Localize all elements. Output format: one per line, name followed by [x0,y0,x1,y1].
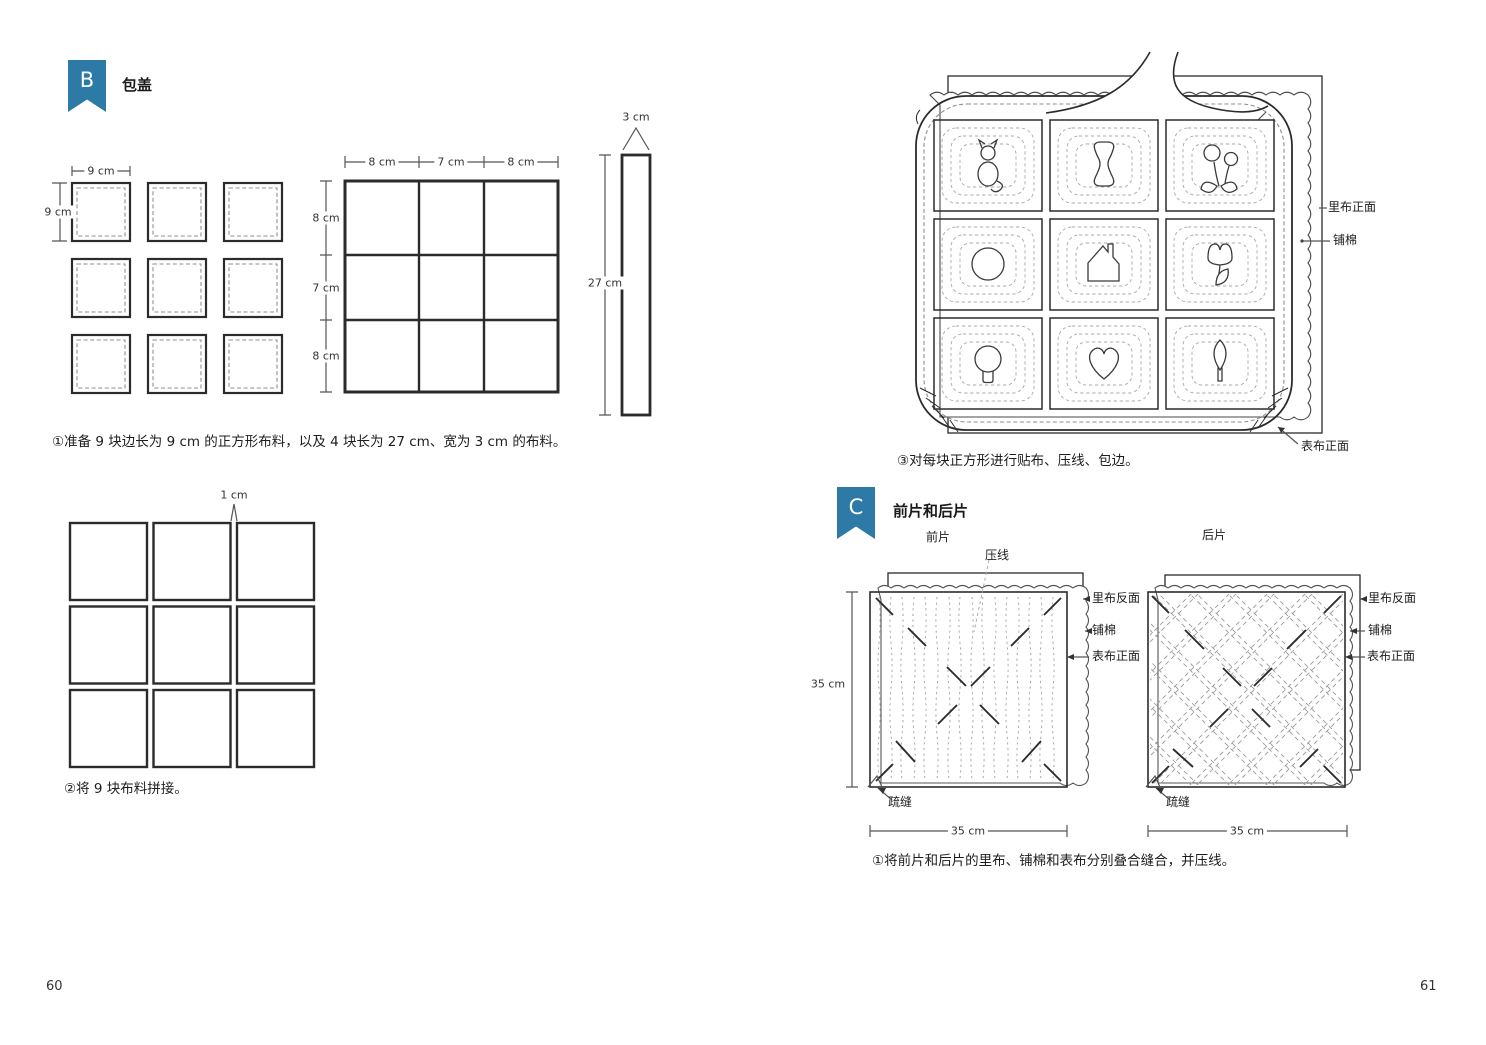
quilting-label: 压线 [985,549,1009,562]
caption-step1-right: ①将前片和后片的里布、铺棉和表布分别叠合缝合，并压线。 [872,849,1235,869]
seam-gap-label: 1 cm [217,489,250,502]
cut-squares-grid [52,166,282,393]
front-batting-label: 铺棉 [1092,624,1116,637]
binding-strip [599,128,650,415]
front-lining-back-label: 里布反面 [1092,592,1140,605]
grid-row-label-1: 8 cm [309,212,342,225]
panel-lining-front-label: 里布正面 [1328,201,1376,214]
strip-length-label: 27 cm [585,277,625,290]
section-c-letter: C [849,495,864,519]
front-piece-title: 前片 [926,531,950,544]
quilt-panel [916,52,1330,444]
diagram-artwork [0,0,1486,1045]
grid-col-label-3: 8 cm [504,156,537,169]
caption-step2-left: ②将 9 块布料拼接。 [64,777,188,797]
front-basting-label: 疏缝 [888,796,912,809]
grid-col-label-2: 7 cm [434,156,467,169]
caption-step1-left: ①准备 9 块边长为 9 cm 的正方形布料，以及 4 块长为 27 cm、宽为… [52,430,566,450]
back-batting-label: 铺棉 [1368,624,1392,637]
front-piece-diagram [846,560,1092,837]
strip-width-label: 3 cm [619,111,652,124]
panel-batting-label: 铺棉 [1333,234,1357,247]
pieced-grid [70,504,314,767]
caption-step3-right: ③对每块正方形进行贴布、压线、包边。 [897,449,1139,469]
page-number-left: 60 [46,979,63,994]
square-height-label: 9 cm [41,206,74,219]
back-width-label: 35 cm [1227,825,1267,838]
page-number-right: 61 [1420,979,1437,994]
back-piece-title: 后片 [1202,529,1226,542]
grid-row-label-2: 7 cm [309,282,342,295]
finished-grid [320,156,558,392]
panel-outer-front-label: 表布正面 [1301,440,1349,453]
square-width-label: 9 cm [84,165,117,178]
book-spread: B 包盖 9 cm 9 cm 8 cm 7 cm 8 cm 8 cm 7 cm … [0,0,1486,1045]
back-outer-front-label: 表布正面 [1367,650,1415,663]
front-height-label: 35 cm [808,678,848,691]
front-outer-front-label: 表布正面 [1092,650,1140,663]
grid-col-label-1: 8 cm [365,156,398,169]
back-lining-back-label: 里布反面 [1368,592,1416,605]
section-b-title: 包盖 [122,74,152,95]
section-b-letter: B [80,68,94,92]
grid-row-label-3: 8 cm [309,350,342,363]
back-basting-label: 疏缝 [1166,796,1190,809]
section-c-title: 前片和后片 [893,500,968,521]
applique-circle-icon [972,248,1004,280]
front-width-label: 35 cm [948,825,988,838]
